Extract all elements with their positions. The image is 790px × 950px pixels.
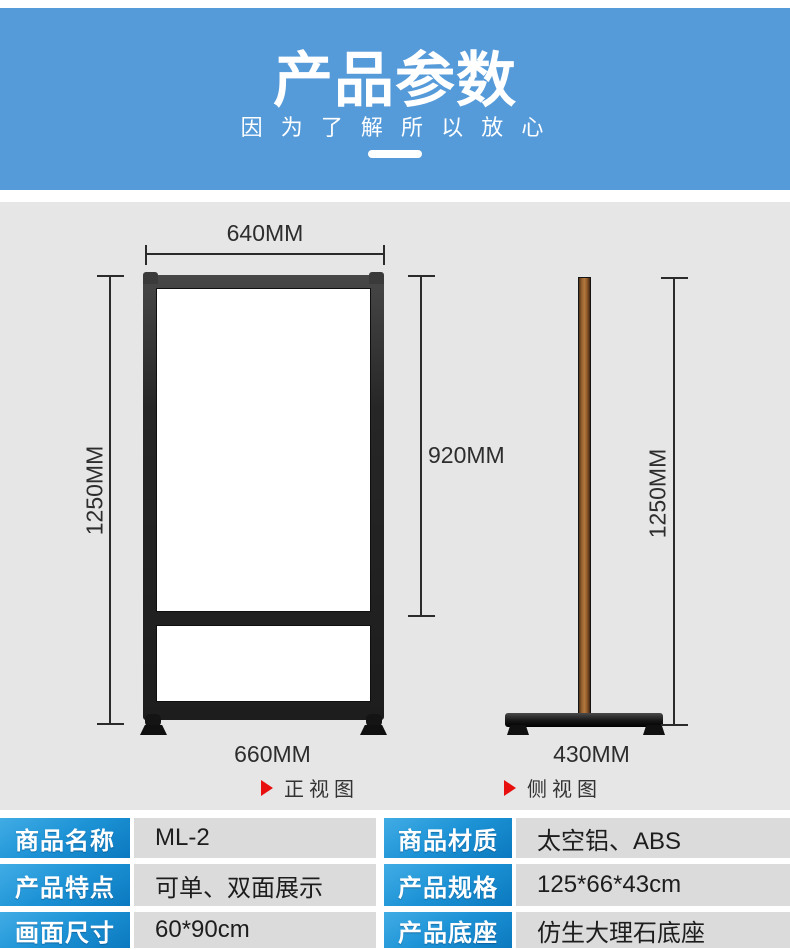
front-view-caption: 正视图 — [261, 773, 359, 802]
red-triangle-icon — [261, 780, 273, 796]
side-base-width-label: 430MM — [519, 741, 664, 768]
side-view-caption-text: 侧视图 — [527, 773, 602, 802]
spec-label-material: 商品材质 — [384, 818, 512, 858]
front-top-width-label: 640MM — [205, 220, 325, 247]
spec-value-screen-size: 60*90cm — [134, 912, 376, 948]
table-row: 产品特点 可单、双面展示 产品规格 125*66*43cm — [0, 864, 790, 906]
side-view-stand-base — [505, 713, 663, 727]
page-title: 产品参数 — [0, 32, 790, 119]
spec-value-base: 仿生大理石底座 — [516, 912, 790, 948]
front-height-dimension-line — [109, 275, 111, 725]
spec-label-features: 产品特点 — [0, 864, 130, 906]
panel-height-dimension-line — [420, 275, 422, 617]
spec-label-product-name: 商品名称 — [0, 818, 130, 858]
frame-corner-cap — [143, 272, 158, 284]
poster-panel-top — [156, 288, 371, 612]
spec-value-features: 可单、双面展示 — [134, 864, 376, 906]
frame-corner-cap — [369, 272, 384, 284]
page-subtitle: 因 为 了 解 所 以 放 心 — [0, 110, 790, 142]
spec-label-size: 产品规格 — [384, 864, 512, 906]
spec-label-base: 产品底座 — [384, 912, 512, 948]
product-parameter-page: 产品参数 因 为 了 解 所 以 放 心 640MM 1250MM 920MM — [0, 0, 790, 950]
spec-value-size: 125*66*43cm — [516, 864, 790, 906]
side-height-label: 1250MM — [645, 434, 672, 554]
diagram-section: 640MM 1250MM 920MM 1250MM 660MM 430MM — [0, 202, 790, 810]
title-underline — [368, 150, 422, 158]
table-row: 商品名称 ML-2 商品材质 太空铝、ABS — [0, 818, 790, 858]
spec-value-product-name: ML-2 — [134, 818, 376, 858]
side-view-caption: 侧视图 — [504, 773, 602, 802]
front-base-width-label: 660MM — [200, 741, 345, 768]
base-foot-pad — [643, 725, 665, 735]
front-view-stand-frame — [143, 275, 384, 720]
side-height-dimension-line — [673, 277, 675, 726]
base-foot-pad — [507, 725, 529, 735]
poster-panel-bottom — [156, 625, 371, 702]
header-banner: 产品参数 因 为 了 解 所 以 放 心 — [0, 8, 790, 190]
panel-height-label: 920MM — [428, 442, 518, 469]
frame-foot-pad — [360, 725, 387, 735]
frame-foot-pad — [140, 725, 167, 735]
spec-label-screen-size: 画面尺寸 — [0, 912, 130, 948]
front-height-label: 1250MM — [82, 431, 109, 551]
table-row: 画面尺寸 60*90cm 产品底座 仿生大理石底座 — [0, 912, 790, 948]
front-view-caption-text: 正视图 — [284, 773, 359, 802]
red-triangle-icon — [504, 780, 516, 796]
spec-value-material: 太空铝、ABS — [516, 818, 790, 858]
front-top-width-dimension-line — [145, 253, 385, 255]
side-view-stand-pole — [578, 277, 591, 715]
